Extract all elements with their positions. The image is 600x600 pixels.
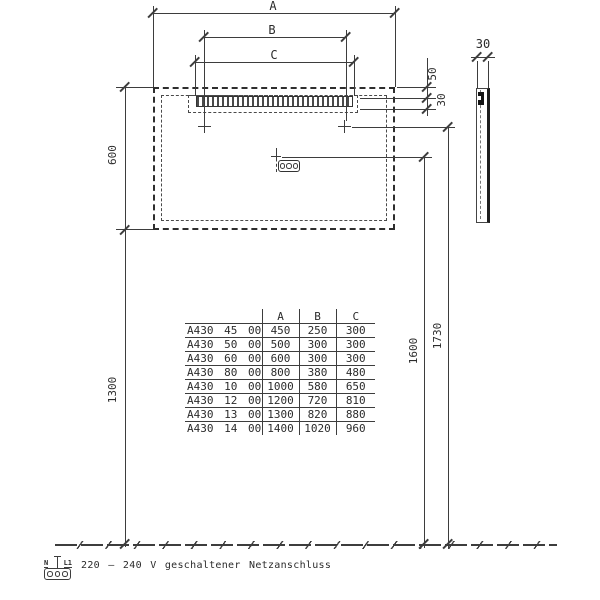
terminal-l1-label: L1	[64, 559, 72, 568]
model-number: A430 45 00	[185, 324, 262, 338]
table-header-c: C	[336, 309, 375, 324]
size-table: A B C A430 45 00 450 250 300 A430 50 00 …	[185, 309, 375, 435]
table-row: A430 10 00 1000 580 650	[185, 380, 375, 394]
value-a: 450	[262, 324, 299, 338]
table-row: A430 45 00 450 250 300	[185, 324, 375, 338]
dim-line-c	[195, 62, 354, 63]
table-header-b: B	[299, 309, 336, 324]
extension-line	[346, 30, 347, 121]
table-row: A430 13 00 1300 820 880	[185, 408, 375, 422]
value-a: 500	[262, 338, 299, 352]
table-row: A430 50 00 500 300 300	[185, 338, 375, 352]
connector-pin-icon	[286, 163, 292, 169]
mounting-point-left	[198, 120, 211, 133]
value-a: 800	[262, 366, 299, 380]
value-c: 880	[336, 408, 375, 422]
dim-label-600: 600	[107, 135, 119, 175]
extension-line	[395, 6, 396, 87]
model-number: A430 13 00	[185, 408, 262, 422]
dim-label-1730: 1730	[432, 316, 444, 356]
value-b: 300	[299, 338, 336, 352]
table-row: A430 60 00 600 300 300	[185, 352, 375, 366]
table-header-model	[185, 309, 262, 324]
model-number: A430 14 00	[185, 422, 262, 436]
table-header-row: A B C	[185, 309, 375, 324]
table-row: A430 12 00 1200 720 810	[185, 394, 375, 408]
model-number: A430 80 00	[185, 366, 262, 380]
side-view-glass-line	[480, 90, 481, 219]
table-row: A430 14 00 1400 1020 960	[185, 422, 375, 436]
dim-label-a: A	[261, 0, 285, 12]
model-number: A430 50 00	[185, 338, 262, 352]
dim-label-b: B	[260, 24, 284, 36]
value-c: 480	[336, 366, 375, 380]
power-note-text: 220 – 240 V geschaltener Netzanschluss	[81, 560, 331, 571]
floor-line	[55, 544, 557, 546]
terminal-box-icon	[44, 568, 71, 580]
installation-drawing: A B C 30 50 30 600 1300 1600 1730 A B C …	[0, 0, 600, 600]
power-connector	[278, 160, 300, 172]
terminal-labels: N L1	[44, 556, 72, 568]
value-a: 1300	[262, 408, 299, 422]
terminal-pin-icon	[62, 571, 68, 577]
dim-label-c: C	[262, 49, 286, 61]
value-b: 250	[299, 324, 336, 338]
value-c: 300	[336, 352, 375, 366]
dim-label-depth: 30	[471, 38, 495, 50]
value-c: 650	[336, 380, 375, 394]
power-terminal-icon: N L1	[44, 556, 72, 580]
value-b: 300	[299, 352, 336, 366]
value-a: 1400	[262, 422, 299, 436]
dim-line-heights-left	[125, 85, 126, 547]
model-number: A430 10 00	[185, 380, 262, 394]
value-a: 1200	[262, 394, 299, 408]
value-c: 300	[336, 338, 375, 352]
extension-line	[488, 61, 489, 88]
connector-pin-icon	[293, 163, 299, 169]
value-c: 960	[336, 422, 375, 436]
dim-line-1600	[424, 157, 425, 548]
dim-label-light-height: 30	[436, 80, 448, 120]
side-view-light-notch	[478, 96, 481, 100]
value-b: 580	[299, 380, 336, 394]
mirror-side-view	[476, 88, 490, 223]
extension-line	[477, 61, 478, 88]
model-number: A430 60 00	[185, 352, 262, 366]
value-b: 1020	[299, 422, 336, 436]
value-c: 300	[336, 324, 375, 338]
value-b: 380	[299, 366, 336, 380]
table-row: A430 80 00 800 380 480	[185, 366, 375, 380]
mounting-point-right	[338, 120, 351, 133]
ground-symbol-icon	[57, 556, 58, 569]
table-header-a: A	[262, 309, 299, 324]
extension-line	[204, 30, 205, 121]
dim-label-1600: 1600	[408, 331, 420, 371]
dim-label-1300: 1300	[107, 370, 119, 410]
extension-line	[352, 127, 455, 128]
extension-line	[282, 157, 432, 158]
dim-line-b	[204, 37, 346, 38]
value-a: 1000	[262, 380, 299, 394]
terminal-pin-icon	[55, 571, 61, 577]
value-c: 810	[336, 394, 375, 408]
dim-line-1730	[448, 127, 449, 548]
extension-line	[153, 6, 154, 87]
value-a: 600	[262, 352, 299, 366]
value-b: 720	[299, 394, 336, 408]
terminal-n-label: N	[44, 559, 48, 568]
dim-line-a	[153, 13, 395, 14]
terminal-pin-icon	[47, 571, 53, 577]
light-fixture	[196, 96, 353, 107]
connector-pin-icon	[280, 163, 286, 169]
model-number: A430 12 00	[185, 394, 262, 408]
value-b: 820	[299, 408, 336, 422]
